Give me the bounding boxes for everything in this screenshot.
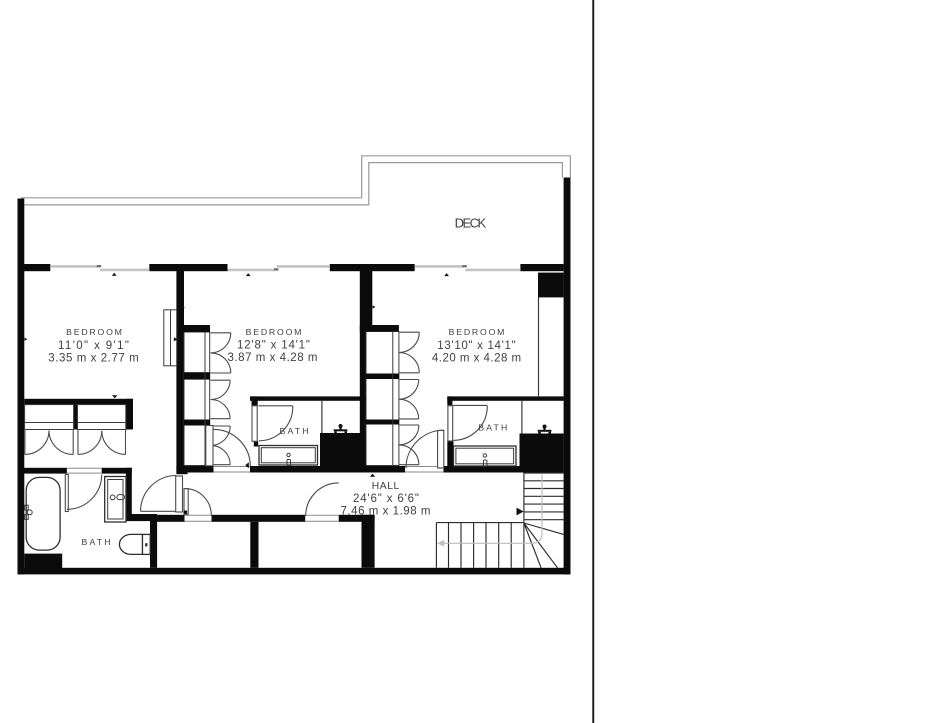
svg-text:12'8" x 14'1": 12'8" x 14'1" xyxy=(237,340,310,352)
svg-text:4.20 m x 4.28 m: 4.20 m x 4.28 m xyxy=(432,352,521,364)
svg-text:BATH: BATH xyxy=(478,423,507,433)
svg-text:HALL: HALL xyxy=(372,481,400,492)
svg-text:3.35 m x 2.77 m: 3.35 m x 2.77 m xyxy=(48,352,139,364)
svg-text:11'0" x 9'1": 11'0" x 9'1" xyxy=(58,340,129,352)
svg-text:7.46 m x 1.98 m: 7.46 m x 1.98 m xyxy=(341,506,431,518)
svg-text:DECK: DECK xyxy=(455,215,487,230)
svg-text:BATH: BATH xyxy=(82,537,111,547)
svg-text:24'6" x 6'6": 24'6" x 6'6" xyxy=(353,493,419,505)
svg-text:13'10" x 14'1": 13'10" x 14'1" xyxy=(437,340,515,352)
svg-text:3.87 m x 4.28 m: 3.87 m x 4.28 m xyxy=(228,352,318,364)
svg-text:BATH: BATH xyxy=(280,426,309,436)
